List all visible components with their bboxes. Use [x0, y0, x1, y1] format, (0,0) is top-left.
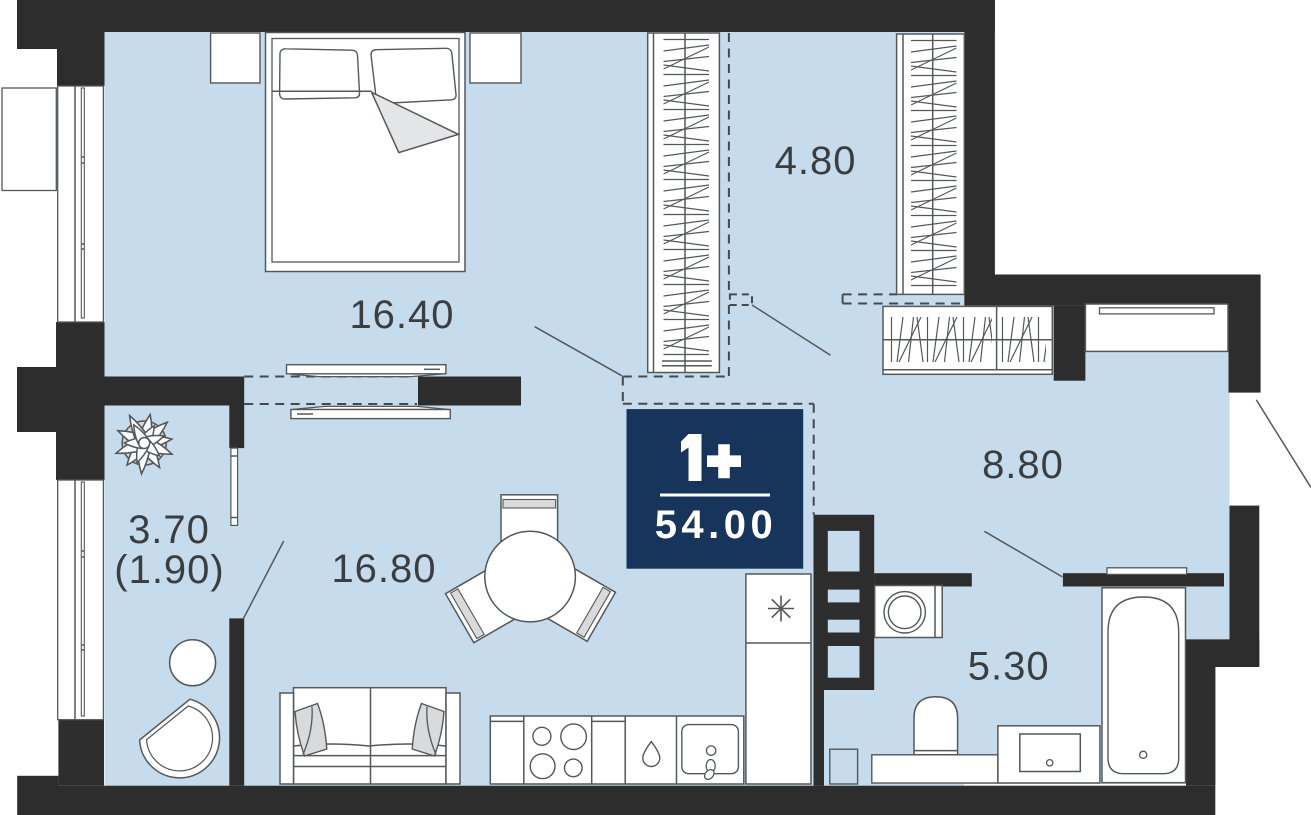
- svg-text:3.70: 3.70: [128, 508, 210, 552]
- svg-text:16.80: 16.80: [331, 547, 436, 591]
- svg-text:(1.90): (1.90): [114, 548, 225, 592]
- svg-text:8.80: 8.80: [982, 443, 1064, 487]
- svg-text:5.30: 5.30: [968, 645, 1050, 689]
- svg-text:54.00: 54.00: [655, 503, 778, 547]
- svg-text:16.40: 16.40: [349, 293, 454, 337]
- svg-text:4.80: 4.80: [775, 139, 857, 183]
